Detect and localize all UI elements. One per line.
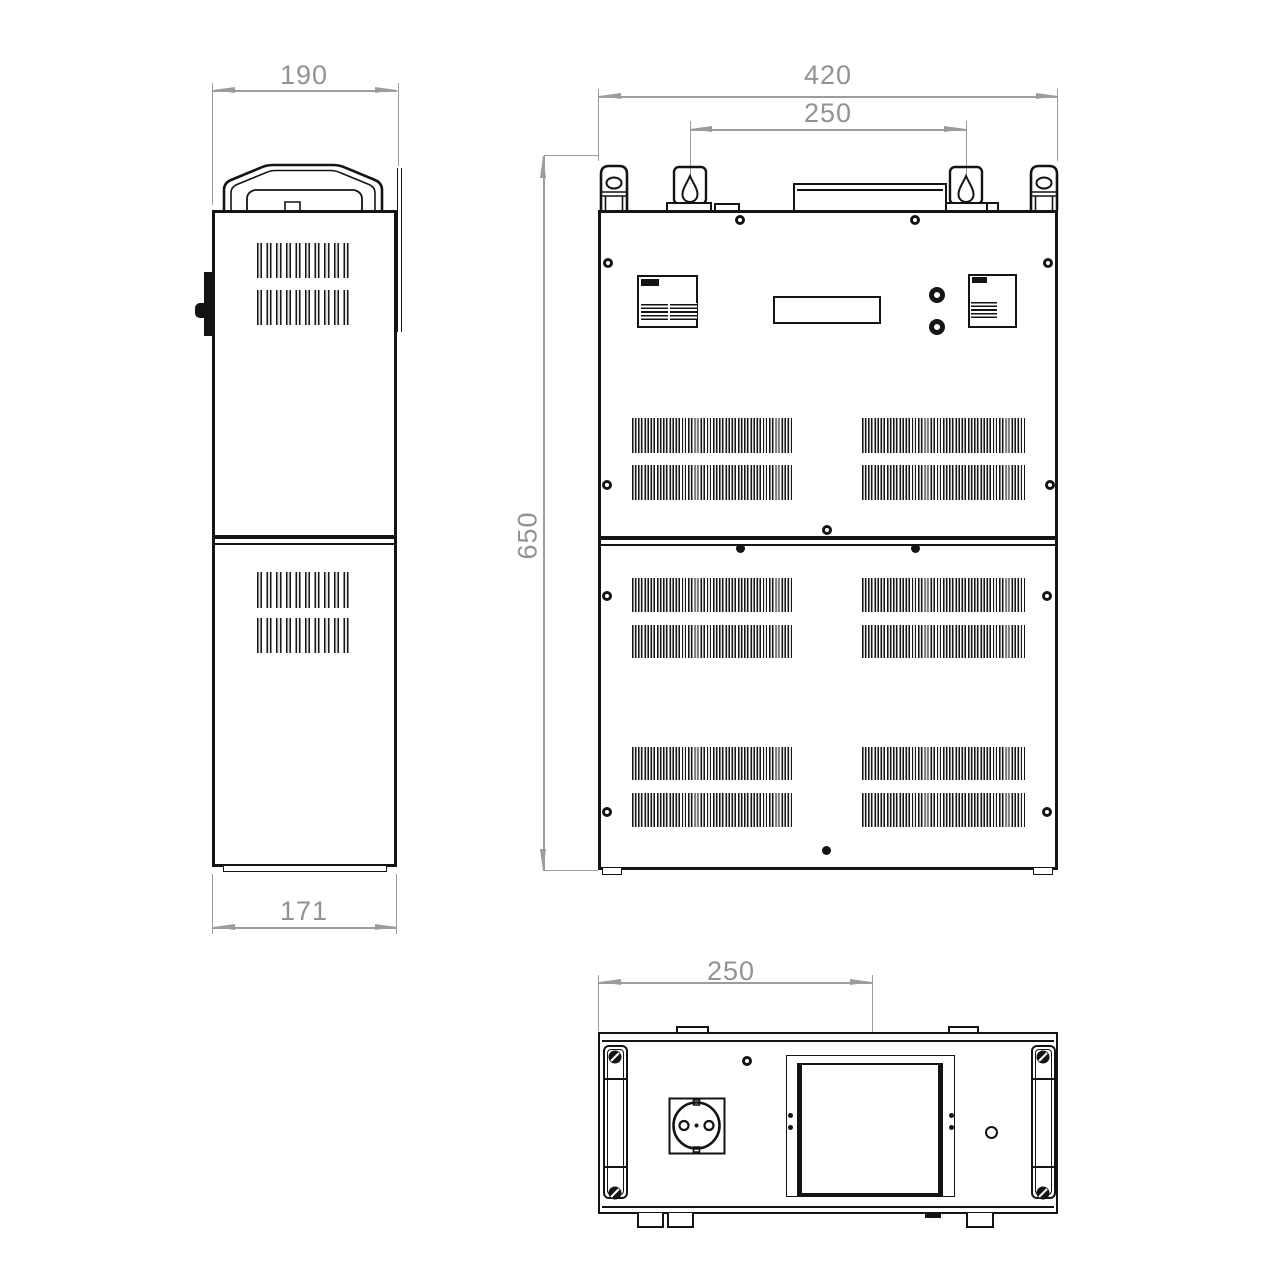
screw-icon bbox=[822, 525, 832, 535]
handle-icon bbox=[216, 158, 390, 212]
screw-icon bbox=[603, 258, 613, 268]
dim-ext-line bbox=[398, 83, 399, 166]
dim-ext-line bbox=[544, 155, 598, 156]
slotted-screw-icon bbox=[607, 1049, 623, 1065]
inner-edge-line bbox=[602, 1206, 1054, 1208]
vent-grille bbox=[862, 418, 1025, 453]
cabinet-split-line bbox=[600, 544, 1056, 546]
vent-grille bbox=[862, 465, 1025, 500]
screw-icon bbox=[742, 1056, 752, 1066]
corner-bracket-icon bbox=[599, 164, 629, 210]
terminal-block bbox=[204, 272, 213, 336]
mount-flange-edge bbox=[397, 168, 402, 332]
dim-arrow-right bbox=[944, 126, 966, 132]
breaker-vents bbox=[670, 303, 697, 320]
vent-grille bbox=[632, 465, 794, 500]
breaker-vents bbox=[641, 303, 668, 320]
dim-line bbox=[690, 129, 966, 131]
display-window bbox=[773, 296, 881, 324]
volter-logo-icon bbox=[972, 277, 987, 283]
cabinet-split-line bbox=[214, 543, 395, 545]
breaker-vents bbox=[971, 302, 997, 318]
vent-grille bbox=[257, 243, 353, 278]
dim-arrow-left bbox=[690, 126, 712, 132]
control-button[interactable] bbox=[929, 319, 945, 335]
mount-rail-inner bbox=[1035, 1049, 1052, 1195]
top-handle-plate-line bbox=[797, 189, 943, 191]
dim-arrow-right bbox=[850, 979, 872, 985]
foot-tab bbox=[602, 868, 622, 875]
screw-icon bbox=[1045, 480, 1055, 490]
side-view: 190 bbox=[0, 0, 460, 960]
vent-grille bbox=[862, 793, 1025, 827]
dim-arrow-left bbox=[599, 93, 621, 99]
dim-ext-line bbox=[598, 975, 599, 1031]
vent-grille bbox=[257, 290, 353, 325]
cabinet-split-line bbox=[214, 535, 395, 539]
dim-line bbox=[543, 156, 545, 871]
screw-icon bbox=[736, 544, 745, 553]
dim-line bbox=[213, 90, 397, 92]
dim-line bbox=[213, 927, 397, 929]
inner-edge-line bbox=[602, 1040, 1054, 1042]
vent-grille bbox=[632, 578, 794, 612]
rail-line bbox=[1031, 1078, 1056, 1080]
dim-label-250-bottom: 250 bbox=[696, 958, 766, 985]
dim-ext-line bbox=[544, 870, 598, 871]
dim-label-250-mount: 250 bbox=[793, 100, 863, 127]
screw-icon bbox=[911, 544, 920, 553]
cover-screw bbox=[949, 1125, 954, 1130]
screw-icon bbox=[1042, 591, 1052, 601]
dim-ext-line bbox=[598, 89, 599, 161]
terminal-knob bbox=[195, 303, 205, 318]
vent-grille bbox=[632, 793, 794, 827]
vent-grille bbox=[632, 747, 794, 780]
rail-line bbox=[603, 1078, 628, 1080]
cover-screw bbox=[788, 1125, 793, 1130]
cover-screw bbox=[788, 1113, 793, 1118]
mount-hole bbox=[985, 1126, 998, 1139]
screw-icon bbox=[910, 215, 920, 225]
power-socket-icon bbox=[668, 1097, 726, 1155]
dim-label-420: 420 bbox=[793, 62, 863, 89]
dim-arrow-up bbox=[540, 156, 546, 178]
screw-icon bbox=[602, 591, 612, 601]
dim-arrow-left bbox=[213, 924, 235, 930]
vent-grille bbox=[632, 625, 794, 658]
foot-tab bbox=[1033, 868, 1053, 875]
screw-icon bbox=[1043, 258, 1053, 268]
mount-rail-inner bbox=[607, 1049, 624, 1195]
vent-grille bbox=[257, 572, 353, 608]
cover-screw bbox=[949, 1113, 954, 1118]
dim-arrow-right bbox=[1036, 93, 1058, 99]
dim-arrow-down bbox=[540, 849, 546, 871]
dim-label-190: 190 bbox=[269, 62, 339, 89]
volter-logo-icon bbox=[641, 279, 659, 286]
slotted-screw-icon bbox=[1035, 1049, 1051, 1065]
top-handle-plate bbox=[793, 183, 947, 211]
rail-line bbox=[603, 1166, 628, 1168]
foot-tab bbox=[667, 1213, 694, 1228]
rail-line bbox=[1031, 1166, 1056, 1168]
corner-bracket-icon bbox=[1029, 164, 1059, 210]
screw-icon bbox=[602, 480, 612, 490]
cover-plate-inner bbox=[797, 1063, 943, 1197]
small-tab bbox=[925, 1213, 941, 1218]
dim-label-650: 650 bbox=[515, 486, 542, 586]
drawing-canvas: 190 bbox=[0, 0, 1280, 1280]
front-view: 420 250 650 bbox=[460, 0, 1280, 960]
dim-line bbox=[599, 982, 872, 984]
dim-label-171: 171 bbox=[269, 898, 339, 925]
control-button[interactable] bbox=[929, 287, 945, 303]
bottom-view: 250 bbox=[460, 940, 1280, 1280]
dim-arrow-left bbox=[213, 87, 235, 93]
dim-ext-line bbox=[1057, 89, 1058, 161]
base-strip bbox=[223, 865, 387, 872]
vent-grille bbox=[862, 578, 1025, 612]
dim-arrow-right bbox=[375, 924, 397, 930]
cabinet-split-line bbox=[600, 536, 1056, 540]
slotted-screw-icon bbox=[1035, 1185, 1051, 1201]
screw-icon bbox=[602, 807, 612, 817]
screw-icon bbox=[735, 215, 745, 225]
foot-tab bbox=[637, 1213, 664, 1228]
dim-arrow-right bbox=[375, 87, 397, 93]
vent-grille bbox=[862, 625, 1025, 658]
screw-icon bbox=[1042, 807, 1052, 817]
dim-ext-line bbox=[212, 83, 213, 205]
foot-tab bbox=[966, 1213, 994, 1228]
dim-arrow-left bbox=[599, 979, 621, 985]
vent-grille bbox=[862, 747, 1025, 780]
slotted-screw-icon bbox=[607, 1185, 623, 1201]
vent-grille bbox=[632, 418, 794, 453]
screw-icon bbox=[822, 846, 831, 855]
vent-grille bbox=[257, 618, 353, 653]
